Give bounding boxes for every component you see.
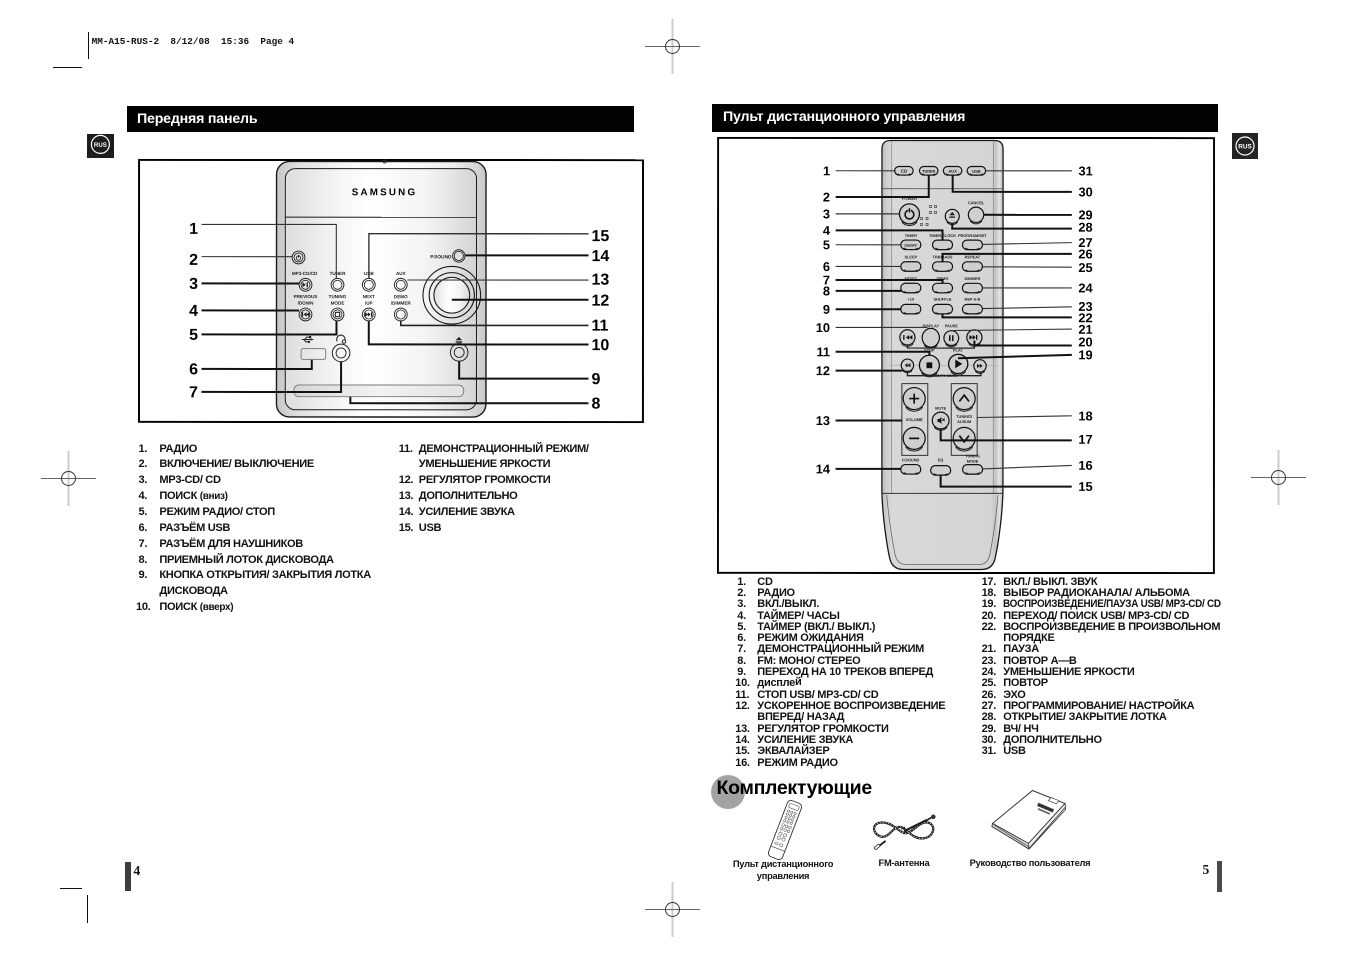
svg-text:MODE: MODE: [967, 459, 979, 464]
svg-text:15: 15: [592, 228, 610, 245]
svg-text:MUTE: MUTE: [935, 406, 946, 411]
svg-text:/UP: /UP: [365, 301, 373, 306]
svg-text:MP3-CD/CD: MP3-CD/CD: [292, 271, 318, 276]
svg-text:SLEEP: SLEEP: [904, 254, 917, 259]
svg-text:TUNER: TUNER: [330, 271, 347, 276]
svg-text:24: 24: [1078, 280, 1093, 295]
svg-text:SHUFFLE: SHUFFLE: [934, 297, 952, 302]
svg-text:13: 13: [816, 413, 830, 428]
svg-text:1: 1: [823, 163, 830, 178]
svg-text:CD: CD: [901, 169, 907, 174]
svg-text:4: 4: [823, 223, 831, 238]
svg-text:AUX: AUX: [948, 169, 957, 174]
svg-text:8: 8: [591, 396, 600, 413]
svg-text:SAMSUNG: SAMSUNG: [352, 187, 417, 198]
svg-text:16: 16: [1078, 458, 1092, 473]
svg-text:2: 2: [823, 189, 830, 204]
svg-text:5: 5: [823, 237, 830, 252]
svg-text:PROGRAM/SET: PROGRAM/SET: [958, 233, 988, 238]
svg-text:15: 15: [1078, 479, 1092, 494]
svg-text:11: 11: [591, 318, 608, 335]
svg-text:P.SOUND: P.SOUND: [902, 457, 919, 462]
svg-text:ON/OFF: ON/OFF: [904, 244, 917, 248]
svg-text:25: 25: [1078, 260, 1092, 275]
svg-text:19: 19: [1078, 347, 1092, 362]
svg-text:TIMER: TIMER: [905, 233, 917, 238]
svg-text:17: 17: [1078, 432, 1092, 447]
svg-text:+10: +10: [908, 297, 915, 302]
svg-text:31: 31: [1078, 163, 1092, 178]
svg-text:PREVIOUS: PREVIOUS: [294, 294, 318, 299]
svg-text:ALBUM: ALBUM: [957, 419, 971, 424]
svg-text:AUX: AUX: [396, 271, 407, 276]
svg-text:PAUSE: PAUSE: [945, 323, 959, 328]
svg-text:REPEAT: REPEAT: [965, 254, 981, 259]
svg-text:10: 10: [591, 337, 609, 354]
svg-text:NEXT: NEXT: [363, 294, 375, 299]
svg-text:28: 28: [1078, 220, 1092, 235]
svg-text:EQ: EQ: [938, 457, 944, 462]
svg-text:RUS: RUS: [94, 142, 107, 149]
svg-text:8: 8: [823, 283, 830, 298]
svg-text:DIMMER: DIMMER: [965, 276, 981, 281]
svg-text:14: 14: [592, 248, 610, 265]
svg-text:11: 11: [816, 344, 830, 359]
svg-text:3: 3: [823, 206, 830, 221]
svg-text:7: 7: [189, 384, 198, 401]
svg-text:9: 9: [823, 302, 830, 317]
svg-text:2: 2: [189, 252, 198, 269]
svg-text:18: 18: [1078, 408, 1092, 423]
svg-text:12: 12: [816, 363, 830, 378]
svg-text:6: 6: [189, 361, 198, 378]
svg-text:TUNER: TUNER: [922, 170, 935, 174]
svg-text:VOLUME: VOLUME: [906, 417, 923, 422]
svg-text:CANCEL: CANCEL: [968, 200, 985, 205]
svg-text:10: 10: [816, 320, 830, 335]
svg-text:REP A-B: REP A-B: [965, 297, 981, 302]
svg-text:DEMO: DEMO: [394, 294, 408, 299]
svg-text:RUS: RUS: [1238, 143, 1252, 150]
svg-text:1: 1: [189, 221, 198, 238]
svg-text:4: 4: [189, 303, 198, 320]
svg-text:P.SOUND: P.SOUND: [430, 254, 452, 260]
svg-text:TUNING: TUNING: [329, 294, 347, 299]
svg-text:/DIMMER: /DIMMER: [391, 301, 412, 306]
svg-text:5: 5: [189, 327, 198, 344]
svg-text:12: 12: [591, 293, 609, 310]
svg-text:13: 13: [592, 272, 610, 289]
svg-text:9: 9: [591, 371, 600, 388]
svg-text:3: 3: [189, 276, 198, 293]
svg-text:14: 14: [816, 461, 831, 476]
svg-text:MODE: MODE: [331, 301, 345, 306]
svg-text:/DOWN: /DOWN: [298, 301, 315, 306]
svg-text:30: 30: [1078, 184, 1092, 199]
svg-text:USB: USB: [972, 169, 981, 174]
